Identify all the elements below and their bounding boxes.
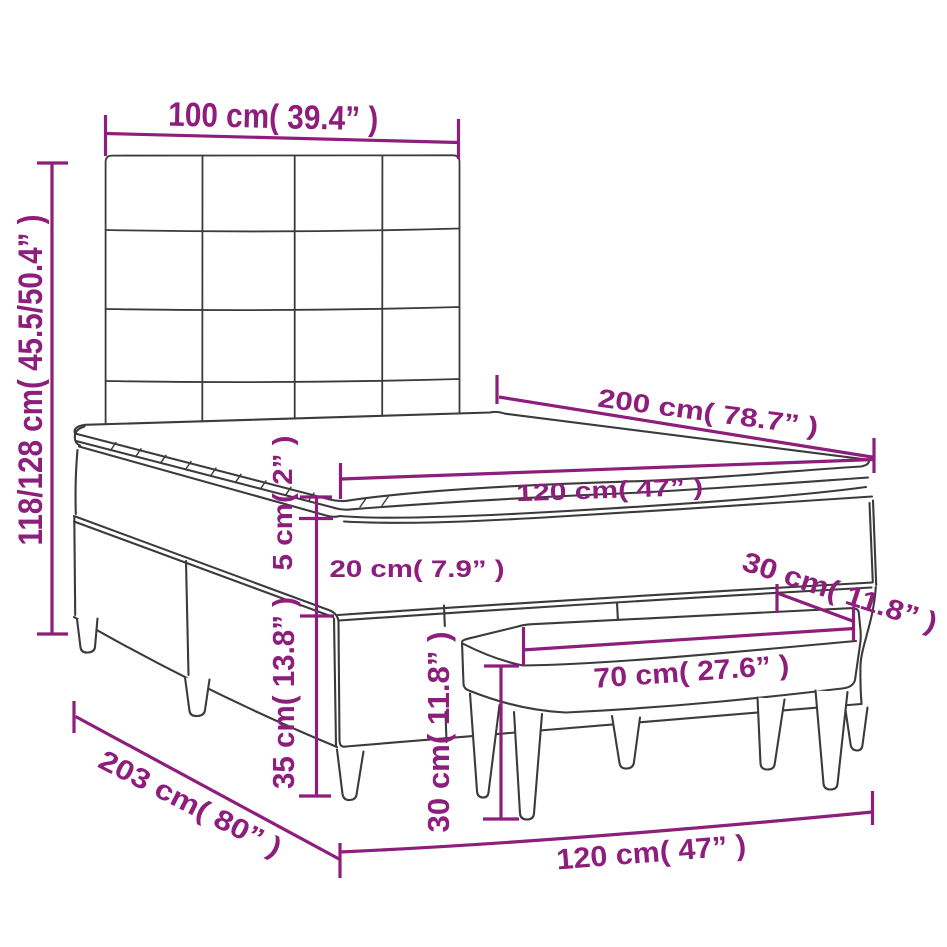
svg-text:100 cm( 39.4” ): 100 cm( 39.4” )	[168, 96, 379, 139]
svg-text:20 cm( 7.9” ): 20 cm( 7.9” )	[330, 556, 505, 583]
svg-text:35 cm( 13.8” ): 35 cm( 13.8” )	[266, 597, 301, 789]
svg-text:5 cm( 2” ): 5 cm( 2” )	[267, 436, 298, 571]
svg-text:30 cm( 11.8” ): 30 cm( 11.8” )	[421, 632, 456, 833]
svg-text:118/128 cm( 45.5/50.4” ): 118/128 cm( 45.5/50.4” )	[12, 215, 50, 546]
